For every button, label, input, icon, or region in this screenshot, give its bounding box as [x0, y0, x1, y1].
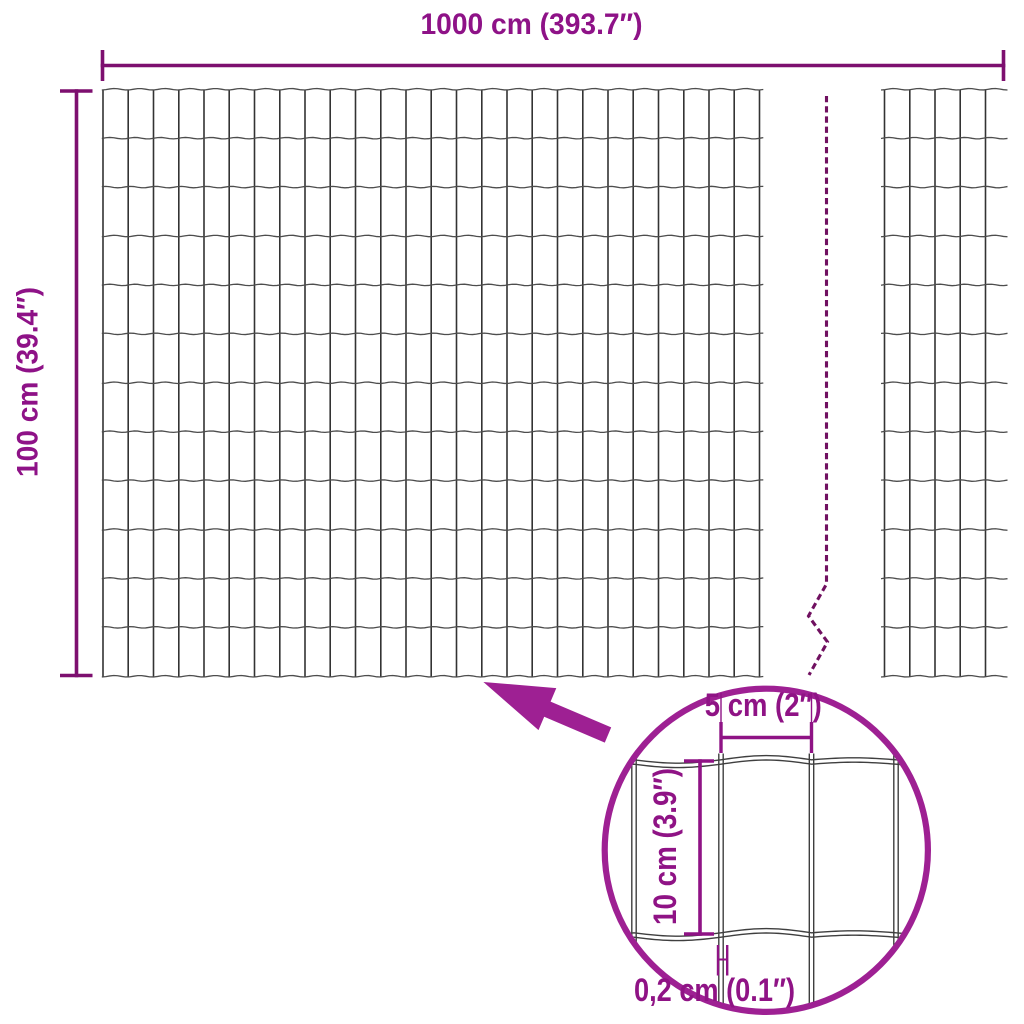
svg-text:0,2 cm (0.1″): 0,2 cm (0.1″): [634, 972, 795, 1008]
svg-text:100 cm (39.4″): 100 cm (39.4″): [12, 287, 45, 477]
svg-text:10 cm (3.9″): 10 cm (3.9″): [647, 768, 683, 925]
svg-text:1000 cm (393.7″): 1000 cm (393.7″): [421, 8, 643, 41]
svg-text:5 cm (2″): 5 cm (2″): [705, 687, 822, 723]
